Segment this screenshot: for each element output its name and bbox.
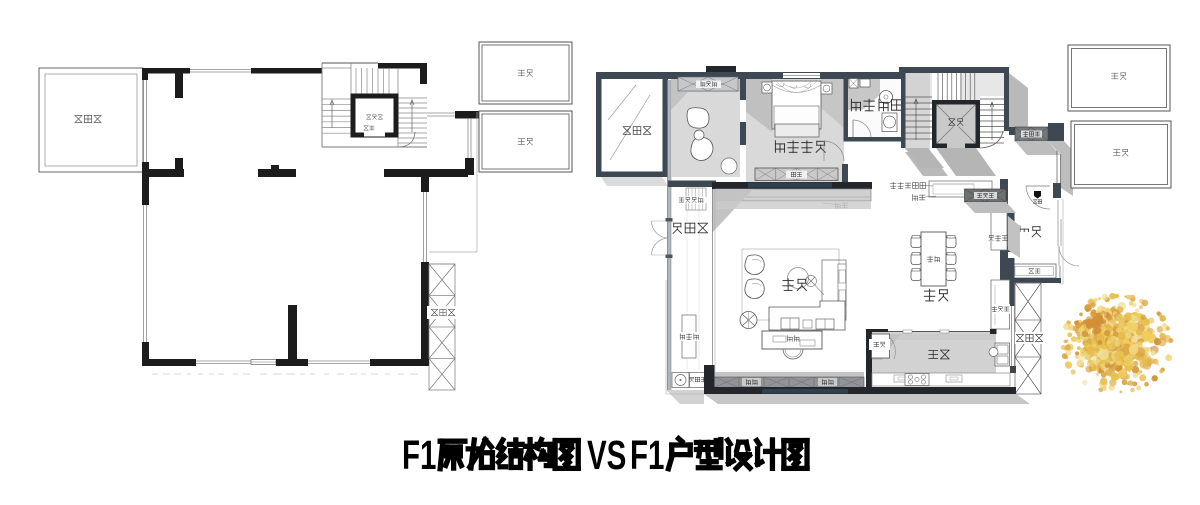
svg-text:VS: VS [587,432,626,478]
svg-text:F1: F1 [630,432,664,478]
svg-text:F1: F1 [402,432,436,478]
